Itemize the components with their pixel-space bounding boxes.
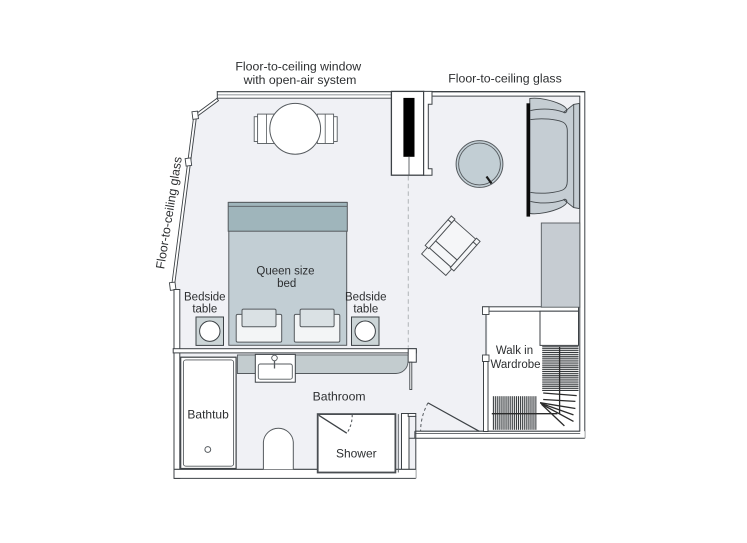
svg-text:Bathroom: Bathroom — [313, 389, 366, 403]
svg-text:Bedside: Bedside — [184, 291, 226, 303]
svg-text:Floor-to-ceiling window: Floor-to-ceiling window — [235, 59, 361, 73]
svg-text:Floor-to-ceiling glass: Floor-to-ceiling glass — [448, 71, 561, 85]
svg-text:Walk in: Walk in — [496, 345, 533, 357]
svg-text:Bedside: Bedside — [345, 291, 387, 303]
svg-text:Bathtub: Bathtub — [187, 408, 229, 422]
svg-text:table: table — [353, 304, 378, 316]
svg-text:Queen size: Queen size — [256, 266, 314, 278]
svg-text:table: table — [192, 304, 217, 316]
svg-text:with open-air system: with open-air system — [243, 73, 357, 87]
svg-text:bed: bed — [277, 278, 296, 290]
svg-text:Shower: Shower — [336, 447, 377, 461]
svg-text:Wardrobe: Wardrobe — [490, 359, 540, 371]
